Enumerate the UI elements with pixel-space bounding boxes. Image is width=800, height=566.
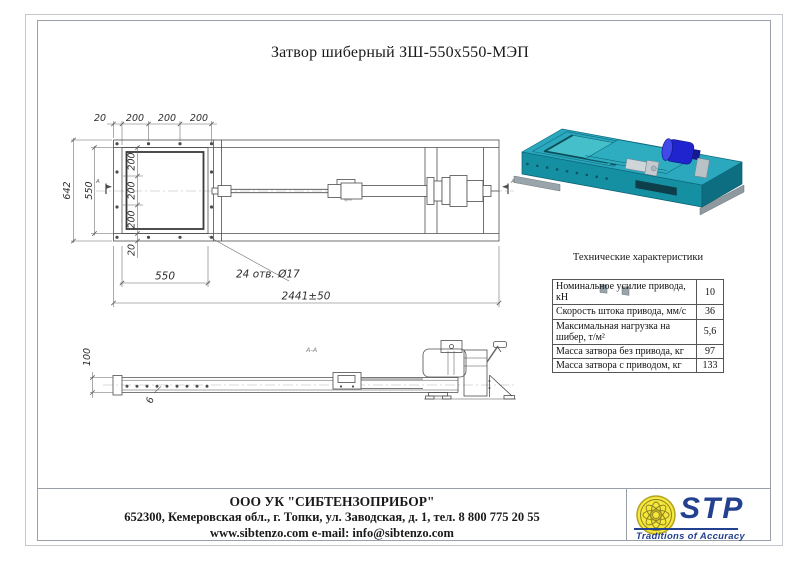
table-row: Максимальная нагрузка на шибер, т/м² 5,6 (553, 319, 724, 344)
dim-label-row-200a: 200 (127, 152, 138, 170)
dim-label-row-200b: 200 (127, 181, 138, 199)
dim-label-top-200c: 200 (190, 113, 208, 124)
dim-label-overall-length: 2441±50 (282, 291, 331, 303)
footer-logo-block: STP Traditions of Accuracy (627, 489, 770, 541)
company-address: 652300, Кемеровская обл., г. Топки, ул. … (38, 510, 626, 526)
side-actuator (333, 373, 423, 390)
section-title: А-А (305, 346, 317, 354)
table-row: Масса затвора без привода, кг 97 (553, 344, 724, 358)
table-row: Номинальное усилие привода, кН 10 (553, 280, 724, 305)
table-row: Масса затвора с приводом, кг 133 (553, 359, 724, 373)
company-name: ООО УК "СИБТЕНЗОПРИБОР" (38, 494, 626, 510)
table-row: Скорость штока привода, мм/с 36 (553, 305, 724, 319)
spec-value: 5,6 (697, 319, 724, 344)
company-web: www.sibtenzo.com e-mail: info@sibtenzo.c… (38, 526, 626, 542)
side-supports (424, 375, 516, 399)
spec-value: 10 (697, 280, 724, 305)
specs-heading: Технические характеристики (551, 252, 725, 263)
dim-label-edge-20: 20 (127, 244, 138, 256)
dim-label-top-200a: 200 (126, 113, 144, 124)
side-bolt-heads (126, 385, 209, 388)
logo-rule (634, 528, 738, 530)
plan-actuator-rod (212, 176, 499, 207)
holes-note-label: 24 отв. Ø17 (236, 269, 300, 281)
spec-value: 97 (697, 344, 724, 358)
spec-label: Максимальная нагрузка на шибер, т/м² (553, 319, 697, 344)
side-view: 100 6 А-А (82, 341, 516, 405)
stp-logo-text: STP (680, 494, 744, 524)
dim-label-6: 6 (144, 396, 156, 405)
dim-label-642: 642 (62, 181, 73, 199)
spec-label: Масса затвора с приводом, кг (553, 359, 697, 373)
logo-tagline: Traditions of Accuracy (636, 531, 745, 542)
plan-view: А А (62, 113, 515, 307)
footer-company-block: ООО УК "СИБТЕНЗОПРИБОР" 652300, Кемеровс… (38, 489, 627, 541)
dim-label-top-20: 20 (94, 113, 106, 124)
dim-label-row-200c: 200 (127, 210, 138, 228)
dim-label-550-left: 550 (84, 181, 95, 199)
section-letter-left: А (95, 179, 100, 185)
specs-table: Номинальное усилие привода, кН 10 Скорос… (552, 279, 724, 373)
spec-value: 36 (697, 305, 724, 319)
dim-label-top-200b: 200 (158, 113, 176, 124)
spec-label: Скорость штока привода, мм/с (553, 305, 697, 319)
dim-label-550-bottom: 550 (155, 271, 175, 283)
dim-label-100: 100 (82, 348, 93, 366)
footer: ООО УК "СИБТЕНЗОПРИБОР" 652300, Кемеровс… (38, 488, 770, 541)
side-motor-assembly (423, 341, 507, 397)
spec-value: 133 (697, 359, 724, 373)
spec-label: Масса затвора без привода, кг (553, 344, 697, 358)
specs-panel: Технические характеристики Номинальное у… (551, 252, 725, 373)
handwheel (487, 342, 507, 363)
spec-label: Номинальное усилие привода, кН (553, 280, 697, 305)
